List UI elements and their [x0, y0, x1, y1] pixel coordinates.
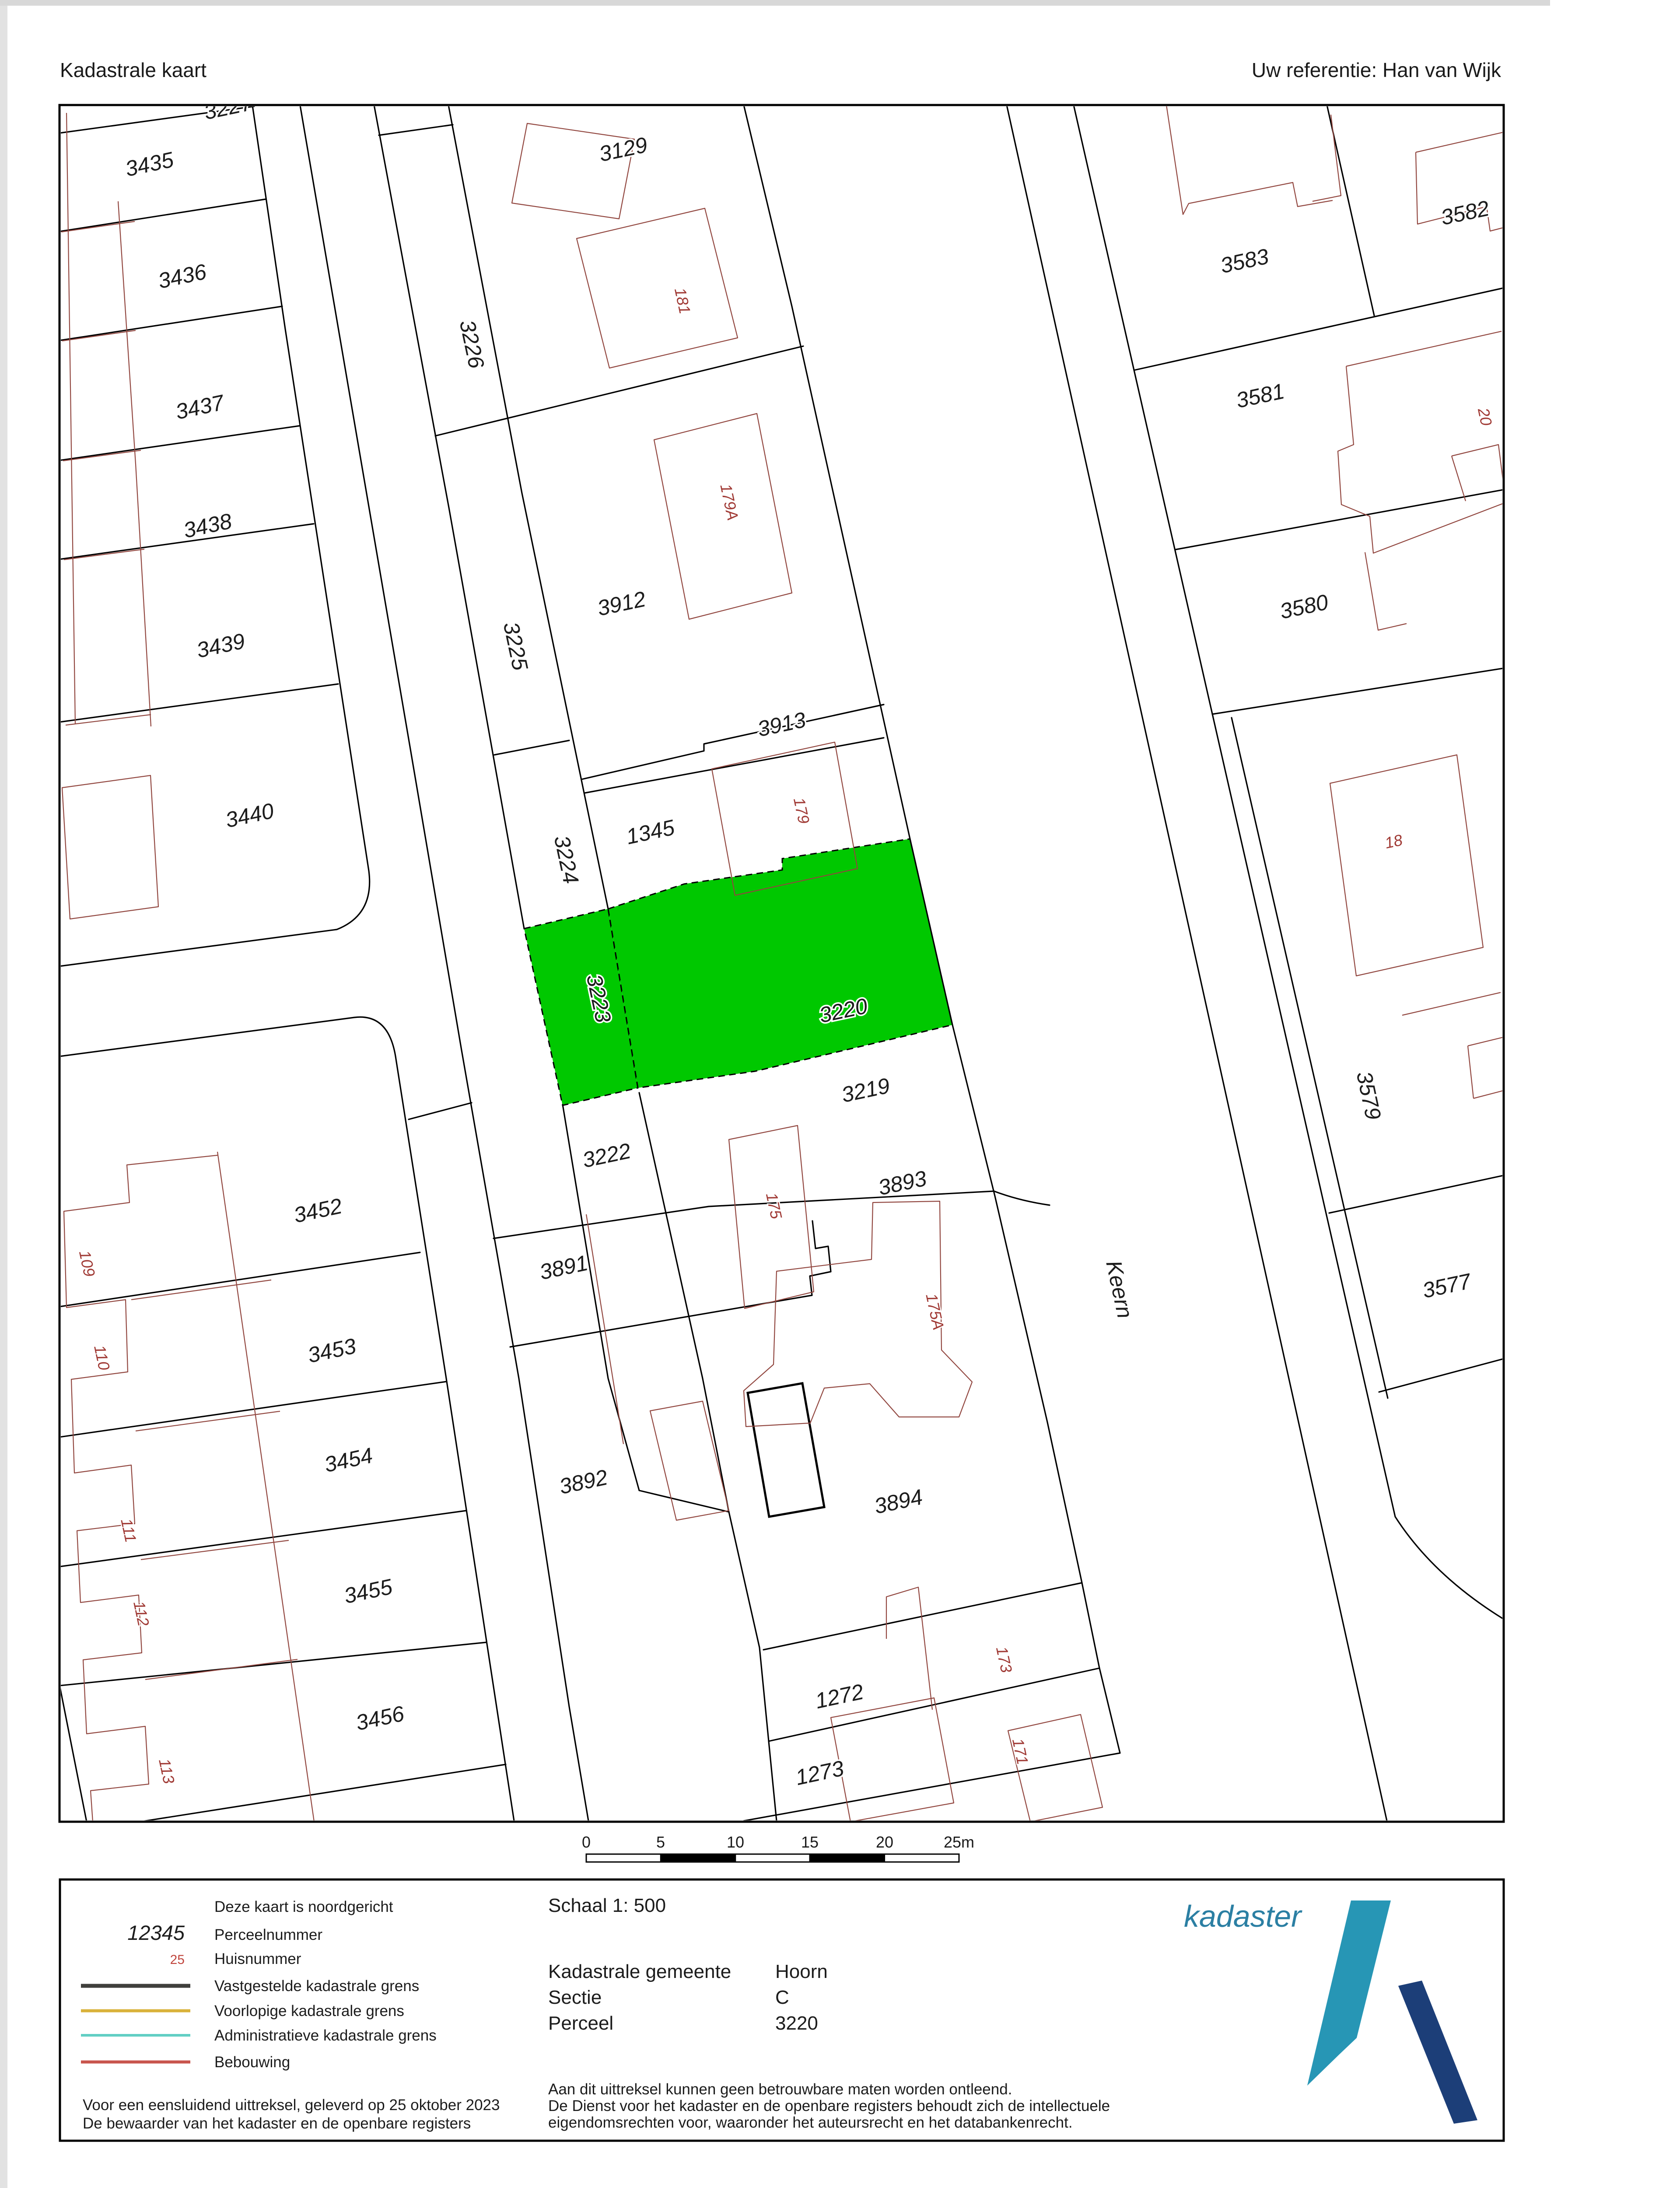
- svg-text:10: 10: [727, 1833, 744, 1851]
- svg-text:Aan dit uittreksel kunnen geen: Aan dit uittreksel kunnen geen betrouwba…: [548, 2081, 1012, 2098]
- svg-text:C: C: [775, 1987, 789, 2008]
- svg-text:eigendomsrechten voor, waarond: eigendomsrechten voor, waaronder het aut…: [548, 2114, 1073, 2131]
- svg-text:5: 5: [656, 1833, 665, 1851]
- svg-text:20: 20: [876, 1833, 893, 1851]
- svg-text:De Dienst voor het kadaster en: De Dienst voor het kadaster en de openba…: [548, 2097, 1110, 2114]
- svg-text:Vastgestelde kadastrale grens: Vastgestelde kadastrale grens: [214, 1978, 419, 1995]
- svg-text:De bewaarder van het kadaster: De bewaarder van het kadaster en de open…: [83, 2115, 471, 2132]
- svg-text:Uw referentie: Han van Wijk: Uw referentie: Han van Wijk: [1252, 59, 1501, 81]
- svg-text:20: 20: [1474, 406, 1496, 428]
- svg-text:Bebouwing: Bebouwing: [214, 2054, 290, 2071]
- svg-text:Kadastrale gemeente: Kadastrale gemeente: [548, 1961, 731, 1982]
- svg-text:Perceel: Perceel: [548, 2013, 613, 2034]
- svg-text:3220: 3220: [775, 2013, 818, 2034]
- svg-text:Administratieve kadastrale gre: Administratieve kadastrale grens: [214, 2027, 437, 2044]
- svg-text:15: 15: [801, 1833, 819, 1851]
- svg-text:kadaster: kadaster: [1184, 1899, 1302, 1933]
- svg-text:Sectie: Sectie: [548, 1987, 602, 2008]
- svg-text:Voorlopige kadastrale grens: Voorlopige kadastrale grens: [214, 2002, 404, 2020]
- svg-text:Hoorn: Hoorn: [775, 1961, 828, 1982]
- svg-text:12345: 12345: [127, 1921, 185, 1944]
- svg-text:Schaal 1: 500: Schaal 1: 500: [548, 1895, 666, 1916]
- svg-text:Perceelnummer: Perceelnummer: [214, 1926, 322, 1943]
- svg-text:Deze kaart is noordgericht: Deze kaart is noordgericht: [214, 1898, 393, 1915]
- svg-text:25m: 25m: [944, 1833, 974, 1851]
- svg-text:25: 25: [170, 1953, 185, 1967]
- svg-text:0: 0: [582, 1833, 591, 1851]
- svg-text:Kadastrale kaart: Kadastrale kaart: [60, 59, 206, 81]
- svg-text:Huisnummer: Huisnummer: [214, 1950, 301, 1967]
- svg-text:18: 18: [1383, 831, 1404, 852]
- svg-text:Voor een eensluidend uittrekse: Voor een eensluidend uittreksel, gelever…: [83, 2097, 500, 2114]
